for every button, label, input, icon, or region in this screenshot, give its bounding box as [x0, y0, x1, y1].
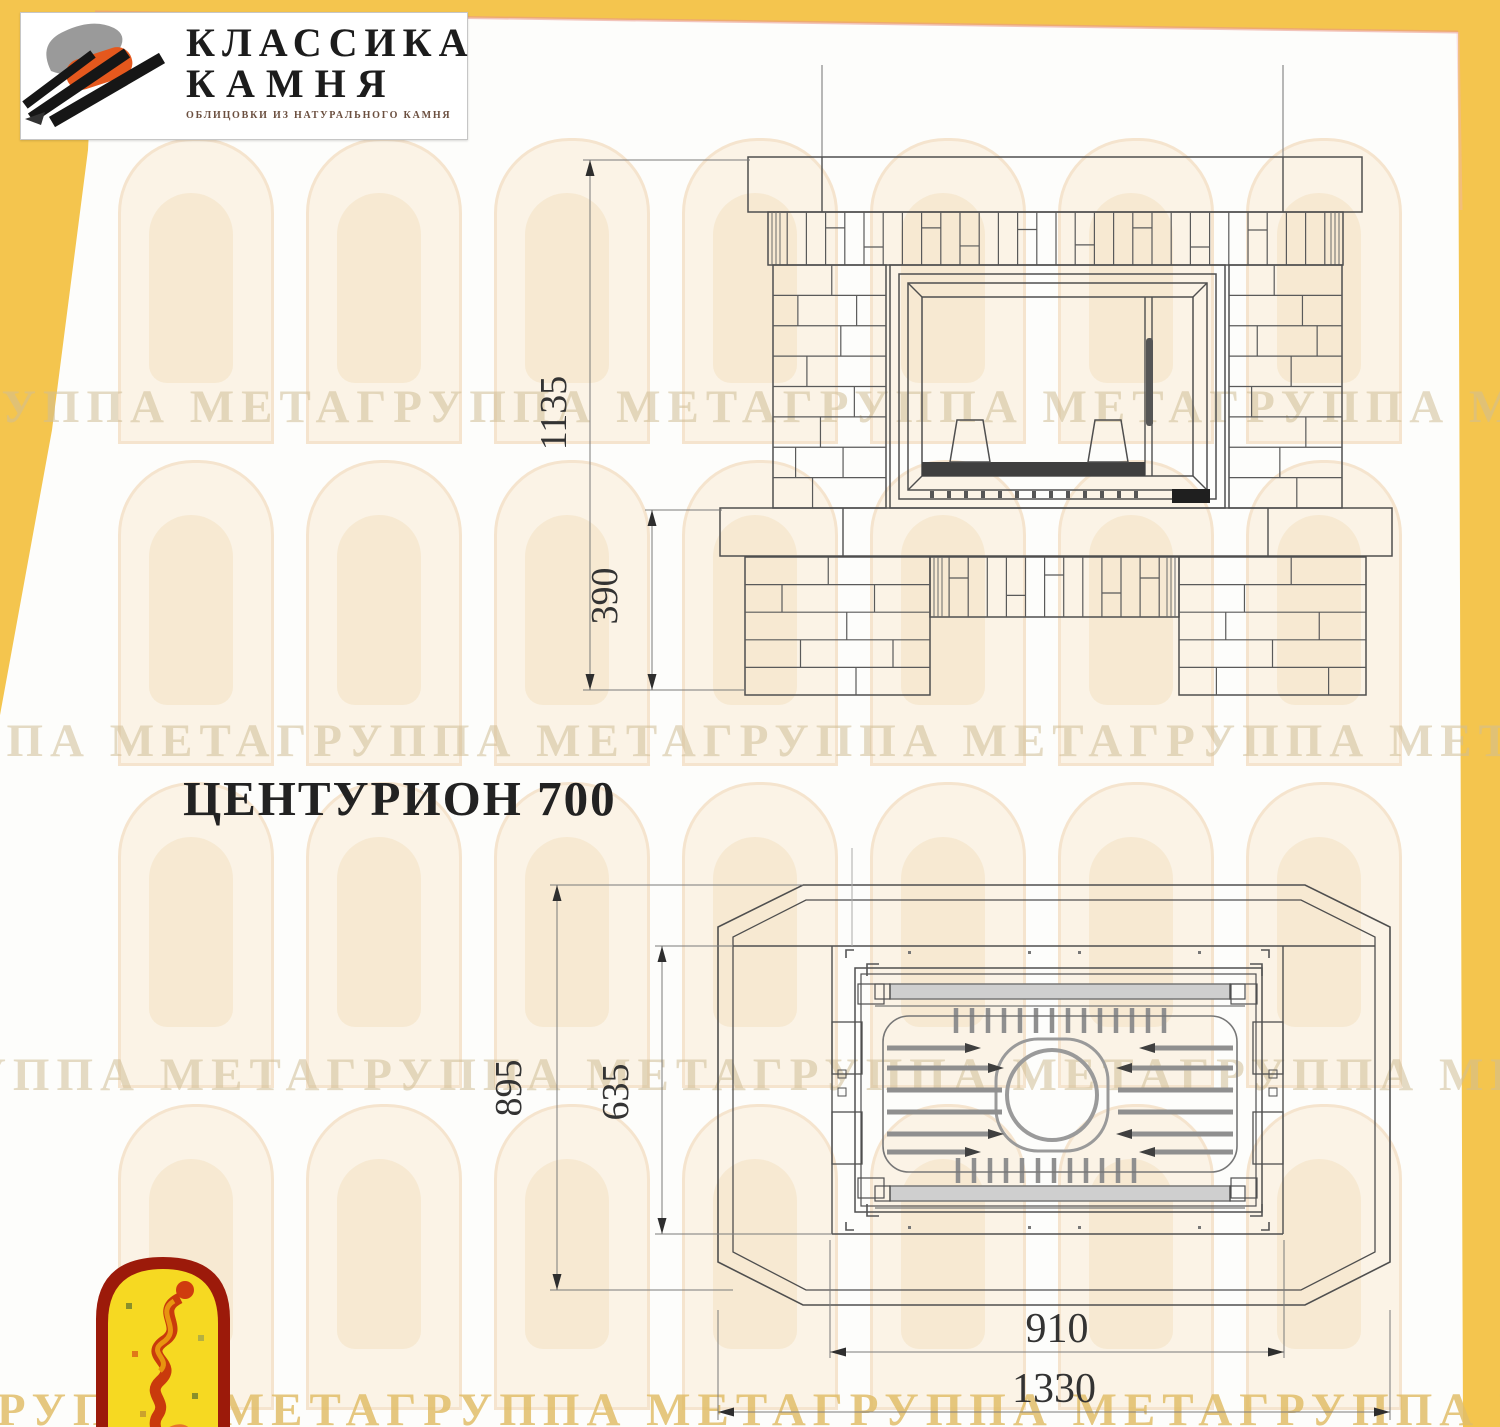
- dim-total-depth-label: 895: [488, 1060, 530, 1117]
- dim-firebox-depth-label: 635: [595, 1064, 637, 1121]
- dim-total-width-label: 1330: [1012, 1366, 1096, 1412]
- logo-name-line1: КЛАССИКА: [186, 23, 474, 64]
- front-elevation-view: [583, 65, 1392, 695]
- fireplace-technical-drawing: 1135 390 895 635 910 1330: [0, 0, 1500, 1427]
- plan-view: [550, 848, 1390, 1420]
- logo-name-line2: КАМНЯ: [186, 64, 474, 105]
- dim-firebox-width-label: 910: [1026, 1306, 1089, 1352]
- dim-total-height-label: 1135: [533, 376, 575, 451]
- company-logo: КЛАССИКА КАМНЯ ОБЛИЦОВКИ ИЗ НАТУРАЛЬНОГО…: [20, 12, 468, 140]
- arch-flame-logo: [88, 1243, 238, 1427]
- page-title: ЦЕНТУРИОН 700: [183, 770, 617, 827]
- stone-emblem: [21, 13, 181, 133]
- logo-text: КЛАССИКА КАМНЯ ОБЛИЦОВКИ ИЗ НАТУРАЛЬНОГО…: [186, 23, 474, 121]
- dimension-labels: 1135 390 895 635 910 1330: [488, 376, 1096, 1412]
- logo-tagline: ОБЛИЦОВКИ ИЗ НАТУРАЛЬНОГО КАМНЯ: [186, 110, 474, 121]
- dim-plinth-height-label: 390: [584, 568, 626, 625]
- spec-sheet-page: ГРУППА МЕТАГРУППА МЕТАГРУППА МЕТАГРУППА …: [0, 0, 1500, 1427]
